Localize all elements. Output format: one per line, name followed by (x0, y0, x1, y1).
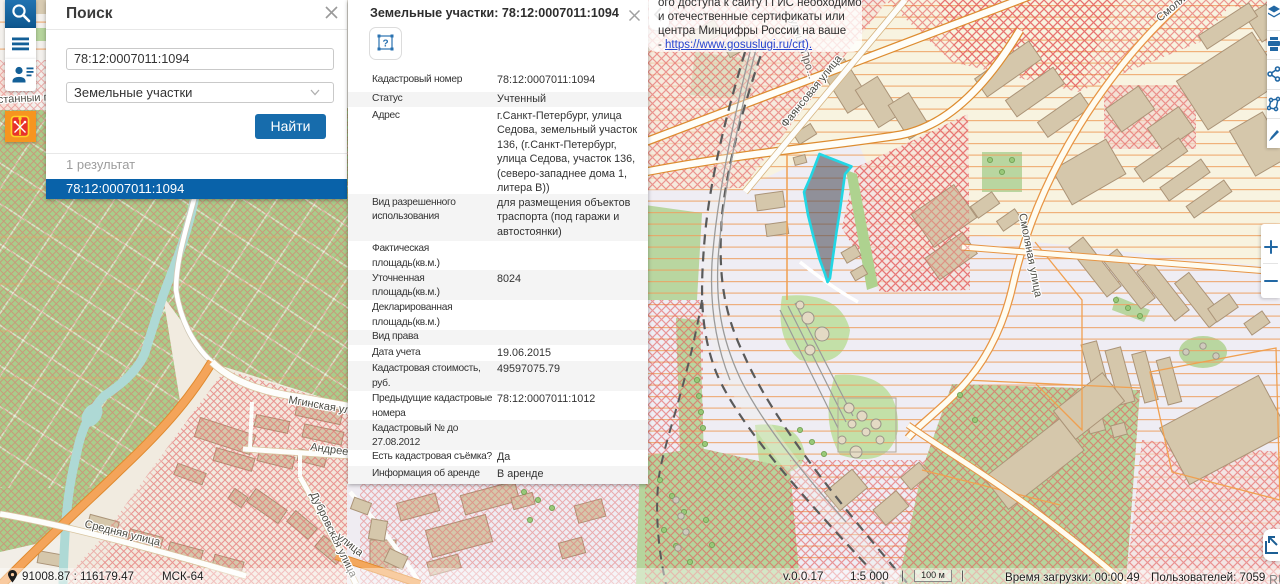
svg-text:?: ? (382, 39, 388, 50)
